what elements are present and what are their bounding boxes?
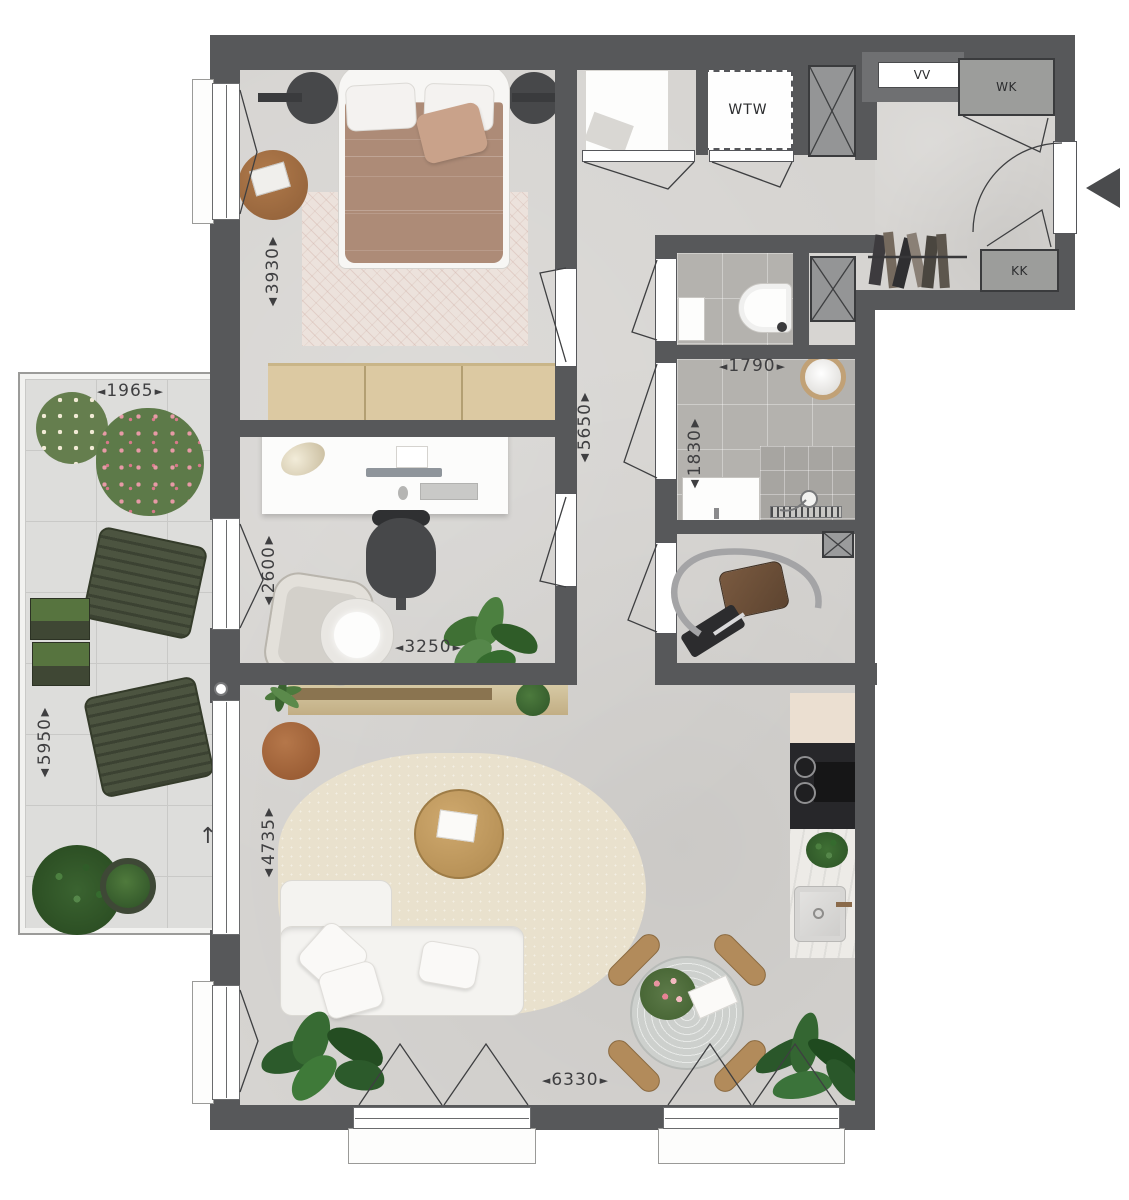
dim-value: 1965 [106, 381, 153, 401]
living-bottom-window-a [353, 1107, 531, 1129]
dim-arrow-left: ◄ [719, 361, 727, 372]
dim-value: 1830 [685, 429, 705, 476]
office-door [555, 493, 577, 587]
dimension-bedroom-depth: ▲ 3930 ▼ [258, 214, 288, 328]
window-sill [658, 1128, 845, 1164]
planter-box [32, 642, 90, 686]
dim-arrow-down: ▼ [41, 767, 49, 778]
vv-label: VV [914, 68, 930, 82]
dim-value: 4735 [259, 818, 279, 865]
wardrobe [268, 363, 560, 423]
shower-drain [770, 506, 842, 518]
dimension-bathroom-height: ▲ 1830 ▼ [680, 398, 710, 508]
wall-bedroom-right-a [555, 70, 577, 270]
planter-box [30, 598, 90, 640]
flush-button [777, 322, 787, 332]
dim-arrow-down: ▼ [691, 478, 699, 489]
entry-arrow-icon [1086, 168, 1120, 208]
dimension-balcony-width: ◄ 1965 ► [82, 380, 178, 402]
dimension-bathroom-width: ◄ 1790 ► [700, 355, 804, 377]
dimension-corridor-length: ▲ 5650 ▼ [570, 370, 600, 484]
bed-pillow-left [345, 82, 417, 132]
wtw-unit: WTW [703, 70, 793, 150]
dim-arrow-up: ▲ [41, 706, 49, 717]
dim-value: 2600 [259, 546, 279, 593]
leaf [770, 1067, 834, 1103]
window-sill [192, 981, 214, 1104]
table-flowers [640, 968, 696, 1020]
living-left-window [212, 985, 240, 1100]
sideboard-plant [516, 682, 550, 716]
range-hood [814, 762, 856, 802]
kk-closet: KK [980, 249, 1059, 292]
wall-toilet-shaft [793, 253, 809, 345]
storage-door [655, 542, 677, 634]
north-arrow: ↑ [196, 824, 220, 854]
vv-shelf: VV [878, 62, 966, 88]
wtw-label: WTW [728, 102, 767, 118]
wall-bedroom-office [230, 420, 577, 437]
floor-plan: WTW VV WK KK ↑ [0, 0, 1129, 1200]
dim-arrow-right: ► [600, 1075, 608, 1086]
dim-arrow-up: ▲ [265, 534, 273, 545]
dimension-living-width: ◄ 6330 ► [518, 1068, 632, 1092]
toilet-door [655, 258, 677, 342]
shaft-top [808, 65, 856, 157]
living-bottom-window-b [663, 1107, 840, 1129]
dimension-balcony-height: ▲ 5950 ▼ [30, 688, 60, 796]
side-table-top [334, 612, 380, 658]
dim-arrow-up: ▲ [265, 806, 273, 817]
dim-value: 3250 [404, 637, 451, 657]
coffee-table-book [436, 809, 478, 842]
toilet-sink [678, 297, 705, 341]
wall-right-lower [855, 310, 875, 1130]
kk-label: KK [1011, 264, 1028, 278]
living-balcony-slider [212, 700, 240, 935]
sink-drain [813, 908, 824, 919]
laundry-basket [800, 354, 846, 400]
dimension-living-height: ▲ 4735 ▼ [254, 786, 284, 898]
dimension-office-height: ▲ 2600 ▼ [254, 518, 284, 622]
dim-arrow-up: ▲ [269, 235, 277, 246]
dim-value: 3930 [263, 247, 283, 294]
dimension-office-width: ◄ 3250 ► [376, 636, 480, 658]
wall-corridor-c [655, 478, 677, 544]
wall-toilet-top [655, 235, 877, 253]
dim-arrow-down: ▼ [265, 595, 273, 606]
living-plant-left [255, 1002, 395, 1112]
dim-arrow-right: ► [155, 386, 163, 397]
wall-left-1 [210, 35, 240, 90]
column-marker [214, 682, 228, 696]
kitchen-plant [806, 832, 848, 868]
keyboard [420, 483, 478, 500]
bedroom-door [555, 268, 577, 367]
entrance-door [1053, 141, 1077, 234]
office-chair [366, 518, 436, 598]
faucet [836, 902, 852, 907]
living-pouf [262, 722, 320, 780]
wall-hall-bottom [855, 290, 1075, 310]
wk-label: WK [996, 80, 1017, 94]
shaft-toilet [810, 256, 856, 322]
office-balcony-door [212, 518, 240, 630]
bedroom-window [212, 83, 240, 220]
wall-closet-div2 [793, 70, 808, 155]
basin-faucet [714, 508, 719, 519]
laptop [396, 446, 428, 468]
wall-corridor-b [655, 340, 677, 364]
dim-value: 5950 [35, 718, 55, 765]
window-sill [348, 1128, 536, 1164]
wall-left-2 [210, 218, 240, 520]
burner [794, 782, 816, 804]
wall-bedroom-right-c [555, 585, 577, 663]
wall-lamp-right [512, 93, 556, 102]
dim-value: 5650 [575, 403, 595, 450]
wall-closet-div1 [696, 70, 708, 155]
kitchen-mat [790, 693, 856, 743]
dim-arrow-left: ◄ [395, 642, 403, 653]
bathroom-door [655, 362, 677, 480]
burner [794, 756, 816, 778]
mouse [398, 486, 408, 500]
potted-plant [100, 858, 156, 914]
dim-arrow-down: ▼ [269, 296, 277, 307]
dim-value: 6330 [551, 1070, 598, 1090]
dim-arrow-down: ▼ [265, 867, 273, 878]
wall-right-upper [1055, 70, 1075, 143]
dim-arrow-left: ◄ [97, 386, 105, 397]
dim-arrow-left: ◄ [542, 1075, 550, 1086]
closet-door-washer [582, 150, 695, 162]
dim-arrow-right: ► [453, 642, 461, 653]
wk-closet: WK [958, 58, 1055, 116]
wall-office-bottom [230, 663, 577, 685]
dim-arrow-down: ▼ [581, 452, 589, 463]
closet-door-wtw [709, 150, 794, 162]
north-arrow-glyph: ↑ [199, 824, 217, 849]
dim-value: 1790 [728, 356, 775, 376]
shower-head [800, 490, 818, 508]
pink-flower-bush [96, 408, 204, 516]
office-chair-base [396, 596, 406, 610]
shaft-storage [822, 531, 854, 558]
dim-arrow-up: ▲ [581, 391, 589, 402]
monitor [366, 468, 442, 477]
wall-lamp-left [258, 93, 302, 102]
dim-arrow-right: ► [777, 361, 785, 372]
wall-storage-bottom [655, 663, 877, 685]
dim-arrow-up: ▲ [691, 417, 699, 428]
window-sill [192, 79, 214, 224]
